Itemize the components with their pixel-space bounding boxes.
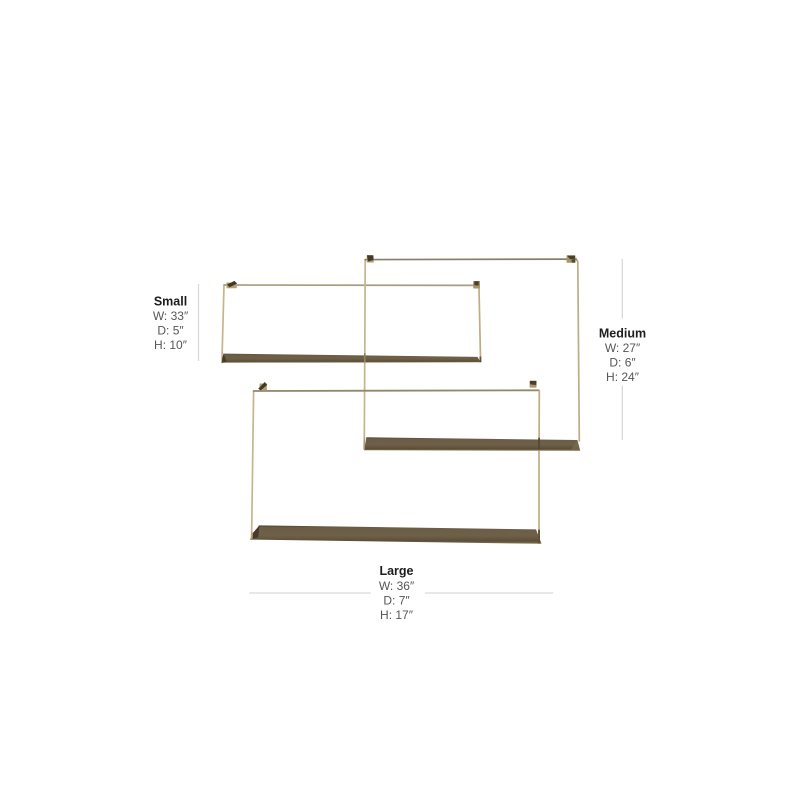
svg-text:W: 36″: W: 36″ bbox=[379, 579, 415, 593]
svg-text:Medium: Medium bbox=[599, 326, 646, 340]
svg-text:Small: Small bbox=[154, 294, 187, 308]
svg-text:W: 27″: W: 27″ bbox=[605, 341, 641, 355]
svg-text:D: 7″: D: 7″ bbox=[383, 593, 410, 607]
svg-text:Large: Large bbox=[379, 564, 413, 578]
svg-text:H: 17″: H: 17″ bbox=[380, 608, 414, 622]
svg-text:D: 6″: D: 6″ bbox=[609, 356, 636, 370]
svg-text:D: 5″: D: 5″ bbox=[157, 323, 184, 337]
svg-text:H: 10″: H: 10″ bbox=[154, 338, 188, 352]
svg-text:W: 33″: W: 33″ bbox=[153, 309, 189, 323]
svg-text:H: 24″: H: 24″ bbox=[606, 370, 640, 384]
